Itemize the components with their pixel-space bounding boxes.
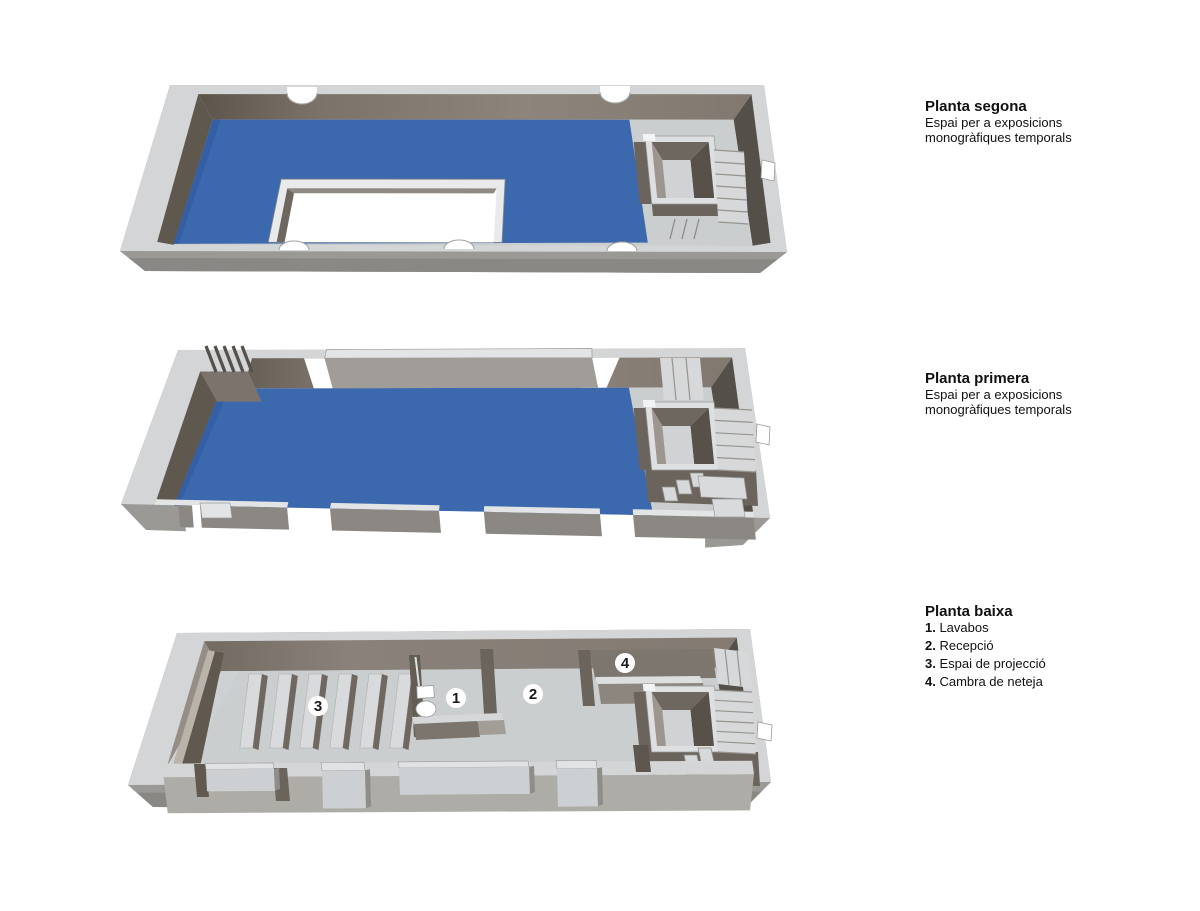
svg-text:monogràfiques temporals: monogràfiques temporals <box>925 130 1072 145</box>
svg-text:1. Lavabos: 1. Lavabos <box>925 620 989 635</box>
svg-text:2: 2 <box>529 686 537 703</box>
svg-text:3. Espai de projecció: 3. Espai de projecció <box>925 656 1046 671</box>
svg-text:2. Recepció: 2. Recepció <box>925 638 994 653</box>
svg-text:Planta baixa: Planta baixa <box>925 603 1013 620</box>
svg-text:Espai per a exposicions: Espai per a exposicions <box>925 115 1063 130</box>
svg-text:3: 3 <box>314 698 322 715</box>
svg-text:1: 1 <box>452 690 460 707</box>
svg-text:Planta segona: Planta segona <box>925 98 1027 115</box>
svg-text:Planta primera: Planta primera <box>925 370 1030 387</box>
svg-text:monogràfiques temporals: monogràfiques temporals <box>925 402 1072 417</box>
svg-text:4. Cambra de neteja: 4. Cambra de neteja <box>925 674 1044 689</box>
svg-text:Espai per a exposicions: Espai per a exposicions <box>925 387 1063 402</box>
svg-text:4: 4 <box>621 655 630 672</box>
